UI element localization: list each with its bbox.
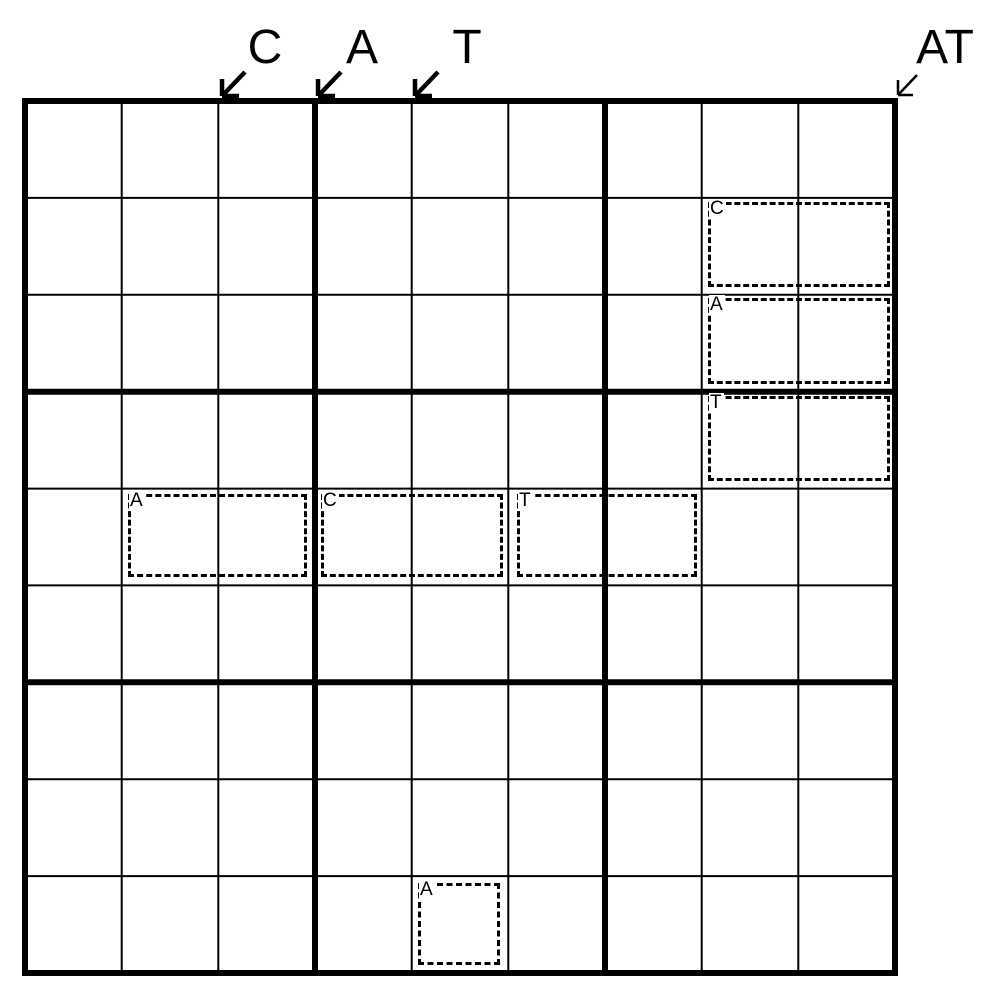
puzzle-canvas: C A T AT C A T A C T A (0, 0, 994, 1000)
word-box-a-row5[interactable]: A (128, 494, 307, 577)
arrow-down-left-icon (222, 72, 245, 96)
column-marker-label-at: AT (912, 24, 978, 72)
word-box-c-row2[interactable]: C (708, 202, 890, 287)
word-box-t-row4[interactable]: T (708, 396, 890, 481)
arrow-down-left-icon (318, 72, 341, 96)
word-box-a-row9[interactable]: A (418, 883, 500, 965)
word-box-label: A (419, 880, 435, 899)
word-box-label: T (518, 491, 533, 510)
arrow-down-left-icon (898, 75, 917, 95)
word-box-c-row5[interactable]: C (321, 494, 503, 577)
arrow-down-left-icon (415, 72, 438, 96)
column-marker-label-a: A (337, 24, 387, 72)
column-marker-arrows (222, 72, 917, 96)
word-box-label: C (322, 491, 339, 510)
word-box-a-row3[interactable]: A (708, 298, 890, 384)
column-marker-label-c: C (240, 24, 290, 72)
word-box-label: C (709, 199, 726, 218)
word-box-label: A (129, 491, 145, 510)
word-box-label: T (709, 393, 724, 412)
word-box-label: A (709, 295, 725, 314)
word-box-t-row5[interactable]: T (517, 494, 697, 577)
column-marker-label-t: T (442, 24, 492, 72)
